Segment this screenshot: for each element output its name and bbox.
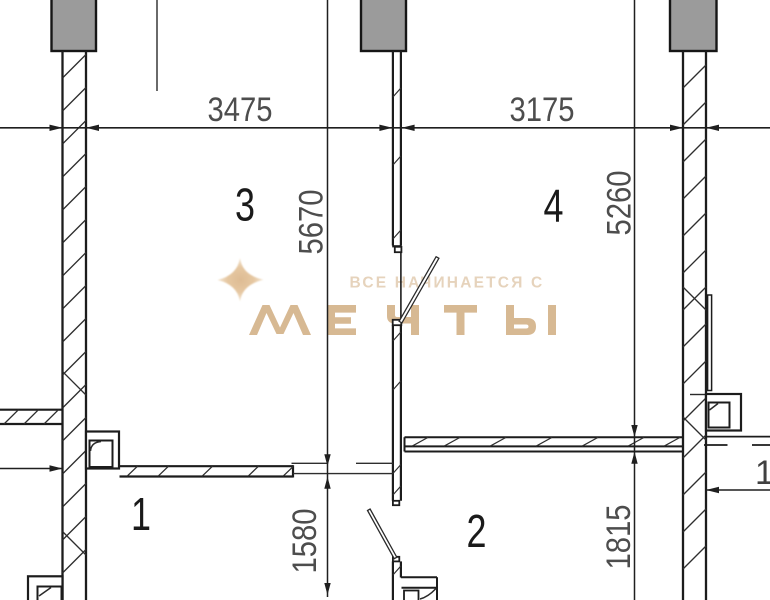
svg-text:1: 1: [755, 454, 770, 492]
svg-text:1815: 1815: [600, 505, 638, 570]
svg-text:4: 4: [544, 180, 564, 232]
svg-text:1580: 1580: [286, 509, 324, 574]
svg-text:3175: 3175: [510, 91, 575, 129]
svg-text:3475: 3475: [208, 91, 273, 129]
svg-text:2: 2: [467, 505, 487, 557]
svg-text:3: 3: [235, 179, 255, 231]
svg-text:5260: 5260: [601, 171, 639, 236]
svg-text:ВСЕ НАЧИНАЕТСЯ С: ВСЕ НАЧИНАЕТСЯ С: [350, 275, 545, 292]
svg-text:5670: 5670: [293, 190, 331, 255]
svg-text:1: 1: [131, 488, 151, 540]
